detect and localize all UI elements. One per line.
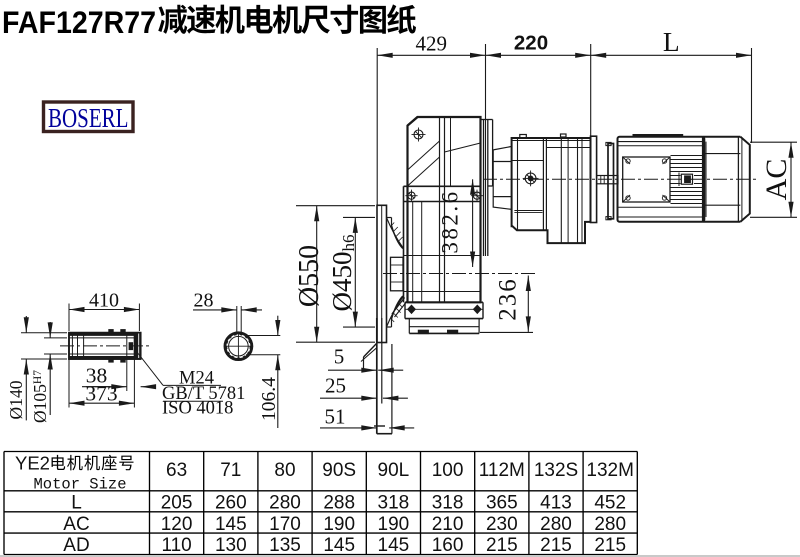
svg-text:410: 410 bbox=[89, 290, 119, 312]
svg-text:112M: 112M bbox=[479, 460, 525, 481]
svg-text:BOSERL: BOSERL bbox=[48, 103, 129, 133]
svg-text:288: 288 bbox=[323, 492, 355, 513]
svg-text:230: 230 bbox=[486, 514, 518, 535]
svg-text:130: 130 bbox=[215, 535, 247, 556]
svg-text:365: 365 bbox=[486, 492, 518, 513]
svg-text:FAF127R77: FAF127R77 bbox=[2, 4, 156, 40]
svg-text:28: 28 bbox=[194, 290, 214, 312]
svg-text:145: 145 bbox=[323, 535, 355, 556]
svg-text:452: 452 bbox=[594, 492, 626, 513]
svg-text:110: 110 bbox=[161, 535, 191, 556]
svg-text:AC: AC bbox=[63, 514, 89, 535]
svg-text:215: 215 bbox=[594, 535, 626, 556]
svg-text:260: 260 bbox=[215, 492, 247, 513]
svg-text:71: 71 bbox=[220, 460, 241, 481]
svg-text:Ø140: Ø140 bbox=[6, 380, 26, 419]
svg-text:L: L bbox=[663, 26, 680, 57]
svg-text:236: 236 bbox=[495, 277, 522, 321]
svg-text:63: 63 bbox=[166, 460, 187, 481]
svg-text:106.4: 106.4 bbox=[259, 377, 280, 421]
svg-text:ISO 4018: ISO 4018 bbox=[162, 399, 233, 419]
svg-text:AD: AD bbox=[63, 535, 89, 556]
svg-text:160: 160 bbox=[432, 535, 464, 556]
svg-text:145: 145 bbox=[215, 514, 247, 535]
svg-text:Motor Size: Motor Size bbox=[33, 476, 126, 494]
svg-text:AC: AC bbox=[760, 159, 793, 201]
svg-text:90S: 90S bbox=[322, 460, 356, 481]
svg-text:25: 25 bbox=[325, 374, 346, 398]
svg-text:382.6: 382.6 bbox=[438, 189, 463, 253]
svg-text:220: 220 bbox=[514, 31, 548, 54]
svg-text:90L: 90L bbox=[378, 460, 410, 481]
svg-text:280: 280 bbox=[594, 514, 626, 535]
svg-text:135: 135 bbox=[269, 535, 301, 556]
svg-text:132M: 132M bbox=[586, 460, 634, 481]
svg-text:51: 51 bbox=[325, 404, 346, 428]
svg-text:205: 205 bbox=[161, 492, 193, 513]
svg-text:373: 373 bbox=[85, 382, 117, 406]
svg-text:215: 215 bbox=[540, 535, 572, 556]
svg-text:5: 5 bbox=[334, 345, 345, 369]
svg-text:145: 145 bbox=[378, 535, 410, 556]
svg-text:318: 318 bbox=[378, 492, 410, 513]
svg-text:Ø550: Ø550 bbox=[294, 245, 325, 307]
svg-text:280: 280 bbox=[269, 492, 301, 513]
svg-text:120: 120 bbox=[161, 514, 193, 535]
svg-text:280: 280 bbox=[540, 514, 572, 535]
svg-text:190: 190 bbox=[323, 514, 355, 535]
svg-text:429: 429 bbox=[415, 31, 447, 55]
svg-text:318: 318 bbox=[432, 492, 464, 513]
svg-text:190: 190 bbox=[378, 514, 410, 535]
svg-text:413: 413 bbox=[540, 492, 572, 513]
svg-text:100: 100 bbox=[432, 460, 464, 481]
svg-text:215: 215 bbox=[486, 535, 518, 556]
svg-text:170: 170 bbox=[269, 514, 301, 535]
svg-text:80: 80 bbox=[274, 460, 295, 481]
svg-text:L: L bbox=[71, 492, 82, 513]
svg-text:132S: 132S bbox=[534, 460, 578, 481]
svg-text:YE2: YE2 bbox=[15, 452, 50, 473]
svg-text:210: 210 bbox=[432, 514, 464, 535]
